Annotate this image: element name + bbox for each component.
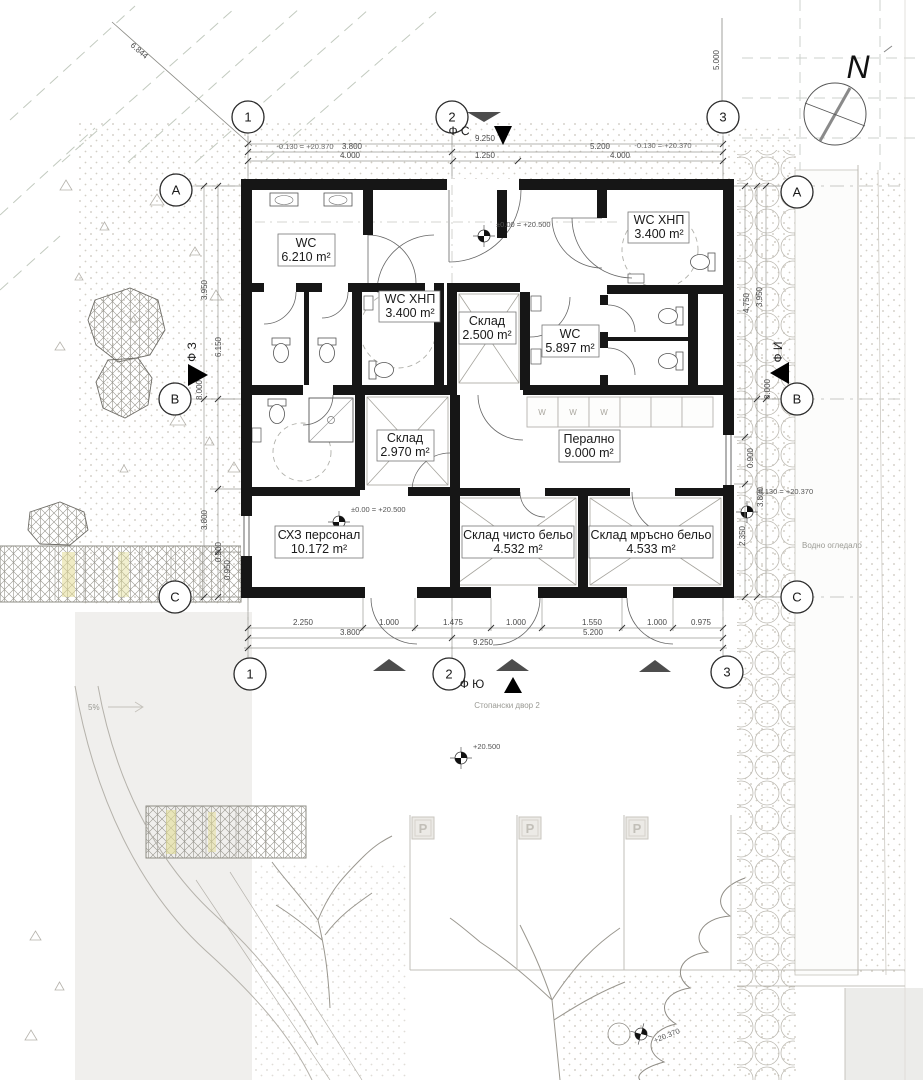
parking-letter: P <box>633 821 642 836</box>
facade-arrow-south <box>504 677 522 693</box>
room-area: 2.970 m² <box>380 445 429 459</box>
facade-arrow-wide-south-1 <box>373 659 406 671</box>
dim-bottom-row1-6: 0.975 <box>691 618 712 627</box>
dim-right-5: 2.350 <box>738 525 747 546</box>
washer-row: W W W <box>527 397 713 427</box>
room-label: СХЗ персонал 10.172 m² <box>275 526 363 558</box>
dimension-north-vertical: 5.000 <box>712 18 722 101</box>
planting-strip-far-east <box>860 170 905 975</box>
dim-bottom-row1-0: 2.250 <box>293 618 314 627</box>
dim-right-3: 0.900 <box>746 447 755 468</box>
room-area: 6.210 m² <box>281 250 330 264</box>
grid-bubble-C-left: C <box>170 590 179 605</box>
planting-area-west <box>78 120 241 605</box>
paved-corner-southeast <box>845 988 923 1080</box>
spot-level-interior-north-value: ±0.00 = +20.500 <box>496 220 551 229</box>
parking-icon: P <box>519 817 541 839</box>
dim-bottom-row1-3: 1.000 <box>506 618 527 627</box>
washer-letter: W <box>569 408 577 417</box>
washer-letter: W <box>600 408 608 417</box>
room-label: Склад 2.500 m² <box>459 312 516 344</box>
dim-diagonal-value: 6.844 <box>129 41 150 61</box>
dim-top-total: 9.250 <box>475 134 496 143</box>
dimension-lines-bottom <box>244 598 727 658</box>
room-label: Склад 2.970 m² <box>377 430 434 461</box>
dim-right-0: 3.950 <box>755 286 764 307</box>
room-name: WC <box>296 236 317 250</box>
room-area: 2.500 m² <box>462 328 511 342</box>
grid-bubble-2-bottom: 2 <box>445 667 452 682</box>
water-label: Водно огледало <box>802 541 862 550</box>
dim-top-row3-0: 4.000 <box>340 151 361 160</box>
room-name: WC ХНП <box>385 292 436 306</box>
room-label: WC 6.210 m² <box>278 234 335 266</box>
room-label: WC 5.897 m² <box>542 325 599 357</box>
dim-bottom-row1-5: 1.000 <box>647 618 668 627</box>
level-offset-top-right: -0.130 = +20.370 <box>634 141 691 150</box>
facade-label-north: Ф С <box>448 124 469 138</box>
room-label: WC ХНП 3.400 m² <box>628 212 689 243</box>
dim-top-row2-0: 3.800 <box>342 142 363 151</box>
facade-arrow-wide-south-2 <box>496 659 529 671</box>
dim-bottom-row2-0: 3.800 <box>340 628 361 637</box>
grid-bubble-B-left: B <box>171 392 180 407</box>
dim-left-0: 3.950 <box>200 279 209 300</box>
slope-label: 5% <box>88 703 100 712</box>
dim-right-2: 8.000 <box>763 378 772 399</box>
facade-label-east: Ф И <box>771 341 785 362</box>
room-label: Перално 9.000 m² <box>559 430 620 462</box>
dim-right-1: 4.750 <box>742 292 751 313</box>
north-tick <box>884 46 892 52</box>
room-name: WC ХНП <box>634 213 685 227</box>
room-name: WC <box>560 327 581 341</box>
hedge-row-west <box>0 546 241 602</box>
spot-level-interior-south-value: ±0.00 = +20.500 <box>351 505 406 514</box>
room-name: Склад мръсно бельо <box>591 528 712 542</box>
room-name: Склад <box>387 431 424 445</box>
grid-bubble-A-right: A <box>793 185 802 200</box>
building: W W W <box>241 179 734 645</box>
grid-bubble-3-bottom: 3 <box>723 665 730 680</box>
north-arrow: N <box>804 46 892 145</box>
dim-bottom-row1-2: 1.475 <box>443 618 464 627</box>
dim-top-row2-1: 5.200 <box>590 142 611 151</box>
grid-bubble-1-bottom: 1 <box>246 667 253 682</box>
hedge-row-southwest <box>146 806 306 858</box>
spot-level-yard-value: +20.500 <box>473 742 500 751</box>
facade-label-west: Ф З <box>185 342 199 362</box>
dim-left-4: 0.900 <box>214 541 223 562</box>
dim-right-4: 3.800 <box>756 486 765 507</box>
dim-bottom-row1-1: 1.000 <box>379 618 400 627</box>
north-letter: N <box>846 49 870 85</box>
compass-chord <box>805 103 865 126</box>
dim-left-3: 3.800 <box>200 509 209 530</box>
grid-bubble-2-top: 2 <box>448 110 455 125</box>
room-name: Склад <box>469 314 506 328</box>
room-area: 10.172 m² <box>291 542 347 556</box>
room-area: 3.400 m² <box>385 306 434 320</box>
room-area: 3.400 m² <box>634 227 683 241</box>
room-label: WC ХНП 3.400 m² <box>379 291 440 322</box>
dim-top-row3-1: 1.250 <box>475 151 496 160</box>
dim-top-row3-2: 4.000 <box>610 151 631 160</box>
parking-stalls: P P P <box>410 815 731 970</box>
parking-icon: P <box>626 817 648 839</box>
grid-bubble-B-right: B <box>793 392 802 407</box>
dim-left-5: 0.950 <box>223 559 232 580</box>
dim-bottom-row2-1: 5.200 <box>583 628 604 637</box>
grid-bubble-3-top: 3 <box>719 110 726 125</box>
grid-bubble-A-left: A <box>172 183 181 198</box>
room-label: Склад чисто бельо 4.532 m² <box>462 526 574 558</box>
facade-label-south: Ф Ю <box>460 677 485 691</box>
room-name: СХЗ персонал <box>278 528 361 542</box>
grid-bubble-C-right: C <box>792 590 801 605</box>
room-area: 9.000 m² <box>564 446 613 460</box>
room-area: 5.897 m² <box>545 341 594 355</box>
grid-bubble-1-top: 1 <box>244 110 251 125</box>
washer-letter: W <box>538 408 546 417</box>
yard-label: Стопански двор 2 <box>474 701 540 710</box>
dim-north-vert-value: 5.000 <box>712 49 721 70</box>
floor-plan-page: P P P Стопански двор 2 Водно огледало 5%… <box>0 0 923 1080</box>
facade-arrow-wide-south-3 <box>639 660 671 672</box>
site-plan-drawing: P P P Стопански двор 2 Водно огледало 5%… <box>0 0 923 1080</box>
dim-left-2: 8.000 <box>195 379 204 400</box>
planting-bed-southeast <box>560 975 738 1080</box>
room-name: Склад чисто бельо <box>463 528 573 542</box>
room-name: Перално <box>564 432 615 446</box>
room-area: 4.532 m² <box>493 542 542 556</box>
room-label: Склад мръсно бельо 4.533 m² <box>589 526 713 558</box>
parking-letter: P <box>419 821 428 836</box>
room-area: 4.533 m² <box>626 542 675 556</box>
parking-icon: P <box>412 817 434 839</box>
parking-letter: P <box>526 821 535 836</box>
spot-level-yard: +20.500 <box>450 742 500 769</box>
dim-bottom-total: 9.250 <box>473 638 494 647</box>
level-offset-top-left: -0.130 = +20.370 <box>276 142 333 151</box>
dim-bottom-row1-4: 1.550 <box>582 618 603 627</box>
shower <box>309 398 353 442</box>
dim-left-1: 6.150 <box>214 336 223 357</box>
